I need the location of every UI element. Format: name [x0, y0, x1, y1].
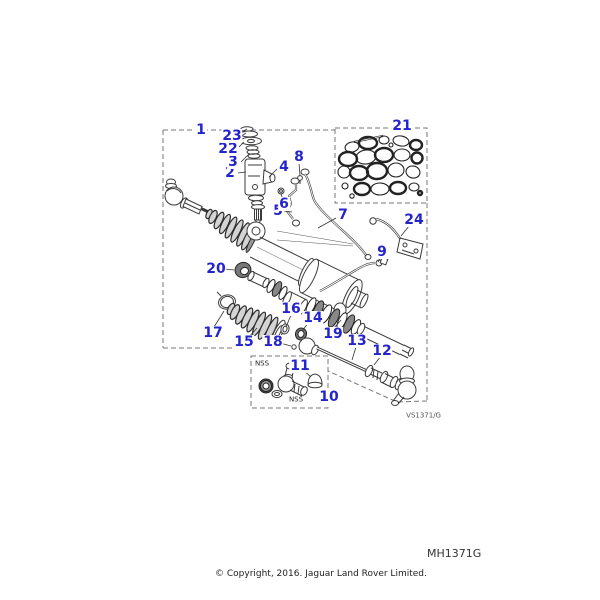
- copyright-text: © Copyright, 2016. Jaguar Land Rover Lim…: [215, 570, 427, 579]
- part-label-15[interactable]: 15: [233, 335, 254, 349]
- part-label-21[interactable]: 21: [391, 119, 412, 133]
- parts-diagram-page: 1 2 3 4 5 6 7 8 9 10 11 12 13 14 15 16 1…: [0, 0, 600, 600]
- part-label-8[interactable]: 8: [293, 150, 305, 164]
- exploded-diagram-artwork: [0, 0, 600, 600]
- part-label-18[interactable]: 18: [262, 335, 283, 349]
- part-label-14[interactable]: 14: [302, 311, 323, 325]
- part-label-20[interactable]: 20: [205, 262, 226, 276]
- part-label-17[interactable]: 17: [202, 326, 223, 340]
- seal-washer-6: [278, 188, 284, 194]
- seal-kit-contents: [338, 135, 423, 199]
- part-label-7[interactable]: 7: [337, 208, 349, 222]
- nss-tag-nut: NSS: [255, 361, 269, 368]
- figure-code: MH1371G: [427, 548, 481, 559]
- part-label-4[interactable]: 4: [278, 160, 290, 174]
- part-label-22[interactable]: 22: [217, 142, 238, 156]
- part-label-10[interactable]: 10: [318, 390, 339, 404]
- part-label-11[interactable]: 11: [289, 359, 310, 373]
- right-tie-rod-end: [392, 366, 417, 406]
- part-label-12[interactable]: 12: [371, 344, 392, 358]
- left-tie-rod-end: [165, 179, 213, 214]
- part-label-19[interactable]: 19: [322, 327, 343, 341]
- part-label-1[interactable]: 1: [195, 123, 207, 137]
- part-label-23[interactable]: 23: [221, 129, 242, 143]
- part-label-16[interactable]: 16: [280, 302, 301, 316]
- part-label-24[interactable]: 24: [403, 213, 424, 227]
- drawing-code: VS1371/G: [406, 413, 441, 420]
- nss-tag-washer: NSS: [289, 397, 303, 404]
- part-label-13[interactable]: 13: [346, 334, 367, 348]
- part-label-9[interactable]: 9: [376, 245, 388, 259]
- part-label-6[interactable]: 6: [278, 197, 290, 211]
- part-label-3[interactable]: 3: [227, 155, 239, 169]
- valve-assembly: [241, 127, 276, 227]
